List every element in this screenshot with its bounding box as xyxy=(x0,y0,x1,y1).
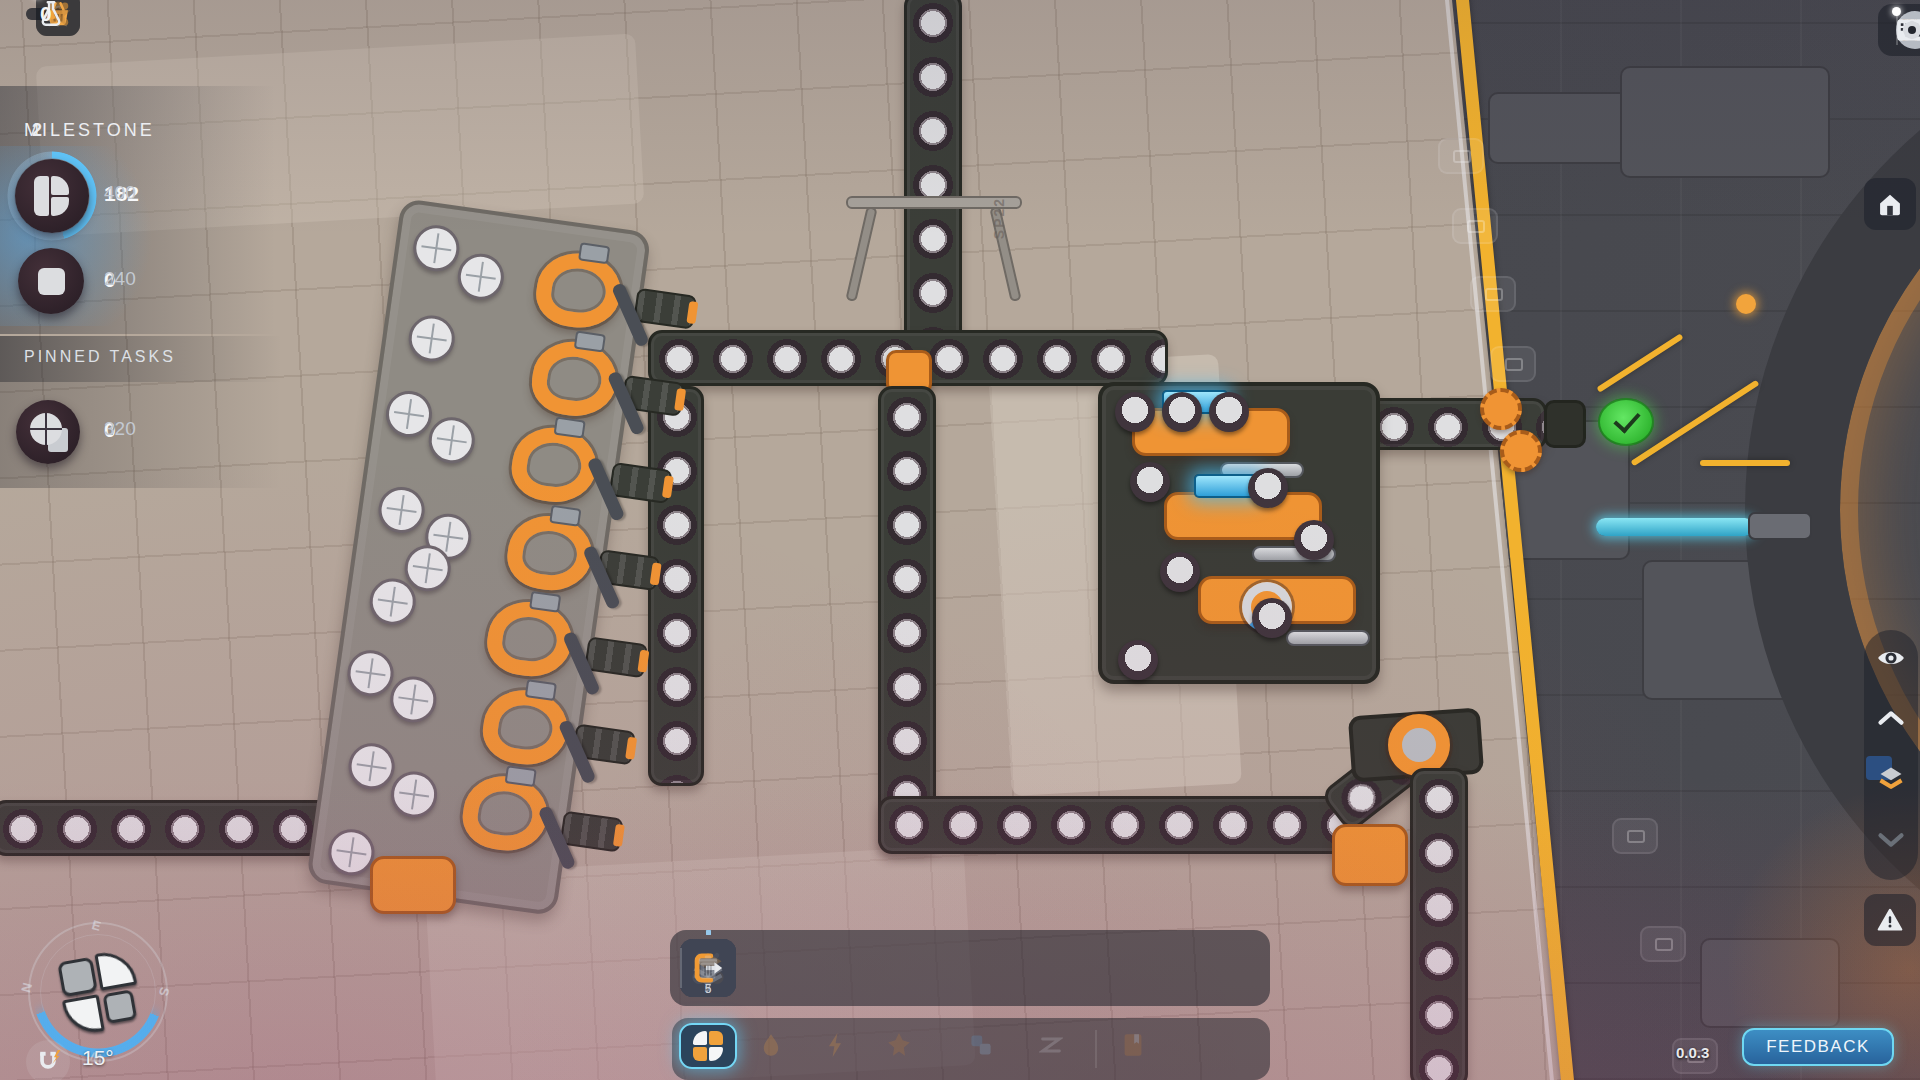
home-button[interactable] xyxy=(1864,178,1916,230)
platform-panel xyxy=(1620,66,1830,178)
view-controls xyxy=(1864,630,1918,880)
current-layer-button[interactable] xyxy=(1867,754,1915,802)
platform-slot-icon xyxy=(1612,818,1658,854)
split-shape-icon xyxy=(34,174,70,218)
shape-item xyxy=(1160,552,1200,592)
conveyor-belt[interactable] xyxy=(878,796,1348,854)
yellow-line xyxy=(1700,460,1790,466)
extractor-output-belt xyxy=(560,811,624,853)
shape-item xyxy=(1252,598,1292,638)
platform-slot-icon xyxy=(1452,208,1498,244)
task-total: 240 xyxy=(104,268,136,290)
hotbar-item-trains[interactable] xyxy=(1038,1032,1064,1058)
milestone-task-badge[interactable] xyxy=(15,159,89,233)
pinned-task-badge[interactable] xyxy=(16,400,80,464)
shape-item xyxy=(1248,468,1288,508)
pipe-connector xyxy=(1748,512,1812,540)
game-viewport[interactable]: SP22 xyxy=(0,0,1920,1080)
belt-elbow[interactable] xyxy=(370,856,456,914)
book-icon xyxy=(1122,1033,1144,1057)
conveyor-belt[interactable] xyxy=(1410,768,1468,1080)
alerts-button[interactable] xyxy=(1864,894,1916,946)
milestone-number: 2 xyxy=(32,120,45,141)
rotation-degrees: 15° xyxy=(82,1046,114,1070)
magnet-icon xyxy=(35,1049,61,1075)
home-icon xyxy=(1876,190,1904,218)
shape-item xyxy=(1115,392,1155,432)
platform-slot-icon xyxy=(1470,276,1516,312)
energy-pipe xyxy=(1596,518,1754,536)
extractor-output-belt xyxy=(584,636,648,678)
launcher-ring[interactable] xyxy=(1388,714,1450,776)
visibility-button[interactable] xyxy=(1867,634,1915,682)
warning-icon xyxy=(1876,907,1904,933)
shape-item xyxy=(1209,392,1249,432)
hotbar-item-blueprints[interactable] xyxy=(1120,1032,1146,1058)
tool-hotkey: 7 xyxy=(680,982,736,996)
fluid-icon xyxy=(969,1033,993,1057)
version-label: 0.0.3 xyxy=(1676,1044,1709,1061)
platform-slot-icon xyxy=(1640,926,1686,962)
quartered-circle-icon xyxy=(30,413,62,445)
hotbar-item-pipes[interactable] xyxy=(968,1032,994,1058)
hotbar-item-crystal[interactable] xyxy=(886,1032,912,1058)
layer-up-button[interactable] xyxy=(1867,694,1915,742)
feedback-button[interactable]: FEEDBACK xyxy=(1742,1028,1894,1066)
platform-slot-icon xyxy=(1490,346,1536,382)
delivery-check-badge xyxy=(1598,398,1654,446)
platform-panel xyxy=(1488,92,1638,164)
eye-icon xyxy=(1876,647,1906,669)
pinned-tasks-title: PINNED TASKS xyxy=(24,348,176,366)
extractor-output-belt xyxy=(609,462,673,504)
chevron-down-icon xyxy=(1877,831,1905,849)
conveyor-belt[interactable] xyxy=(904,0,962,374)
floor-decal: SP22 xyxy=(991,197,1007,239)
belt-endcap xyxy=(1544,400,1586,448)
belt-gear[interactable] xyxy=(1480,388,1522,430)
snap-toggle[interactable] xyxy=(26,1040,70,1080)
hotbar-divider xyxy=(1095,1030,1097,1068)
milestone-task-badge[interactable] xyxy=(18,248,84,314)
conveyor-belt[interactable] xyxy=(878,386,936,852)
shape-item xyxy=(1130,462,1170,502)
research-count: 0 xyxy=(36,2,62,26)
task-total: 320 xyxy=(104,418,136,440)
flame-icon xyxy=(761,1033,781,1057)
chevron-up-icon xyxy=(1877,709,1905,727)
shape-item xyxy=(1118,640,1158,680)
belt-gear[interactable] xyxy=(1500,430,1542,472)
trash-icon xyxy=(693,952,723,984)
crystal-icon xyxy=(887,1033,911,1057)
build-toolbar: 1 2 3 xyxy=(670,930,1270,1006)
bolt-icon xyxy=(826,1033,844,1057)
current-shape-preview xyxy=(55,948,143,1036)
rotator-roller xyxy=(1286,630,1370,646)
quartered-shape-icon xyxy=(693,1031,723,1061)
shape-item xyxy=(1294,520,1334,560)
research-counter[interactable]: 0 xyxy=(26,8,46,20)
platform-slot-icon xyxy=(1438,138,1484,174)
orange-button-prop xyxy=(1736,294,1756,314)
building-hotbar xyxy=(672,1018,1270,1080)
train-icon xyxy=(1039,1033,1063,1057)
settings-gear-icon[interactable] xyxy=(1896,14,1920,46)
tool-slot-7-delete[interactable]: 7 xyxy=(680,939,736,997)
top-right-toolbar: ? xyxy=(1878,4,1920,56)
extractor-output-belt xyxy=(633,288,697,330)
layers-icon xyxy=(1876,764,1906,792)
feedback-label: FEEDBACK xyxy=(1766,1037,1870,1057)
task-total: 400 xyxy=(104,182,136,204)
hotbar-selected-shapes[interactable] xyxy=(679,1023,737,1069)
layer-down-button[interactable] xyxy=(1867,816,1915,864)
square-shape-icon xyxy=(38,268,65,295)
shape-item xyxy=(1162,392,1202,432)
belt-elbow[interactable] xyxy=(1332,824,1408,886)
hotbar-item-energy[interactable] xyxy=(822,1032,848,1058)
hotbar-item-fluids[interactable] xyxy=(758,1032,784,1058)
